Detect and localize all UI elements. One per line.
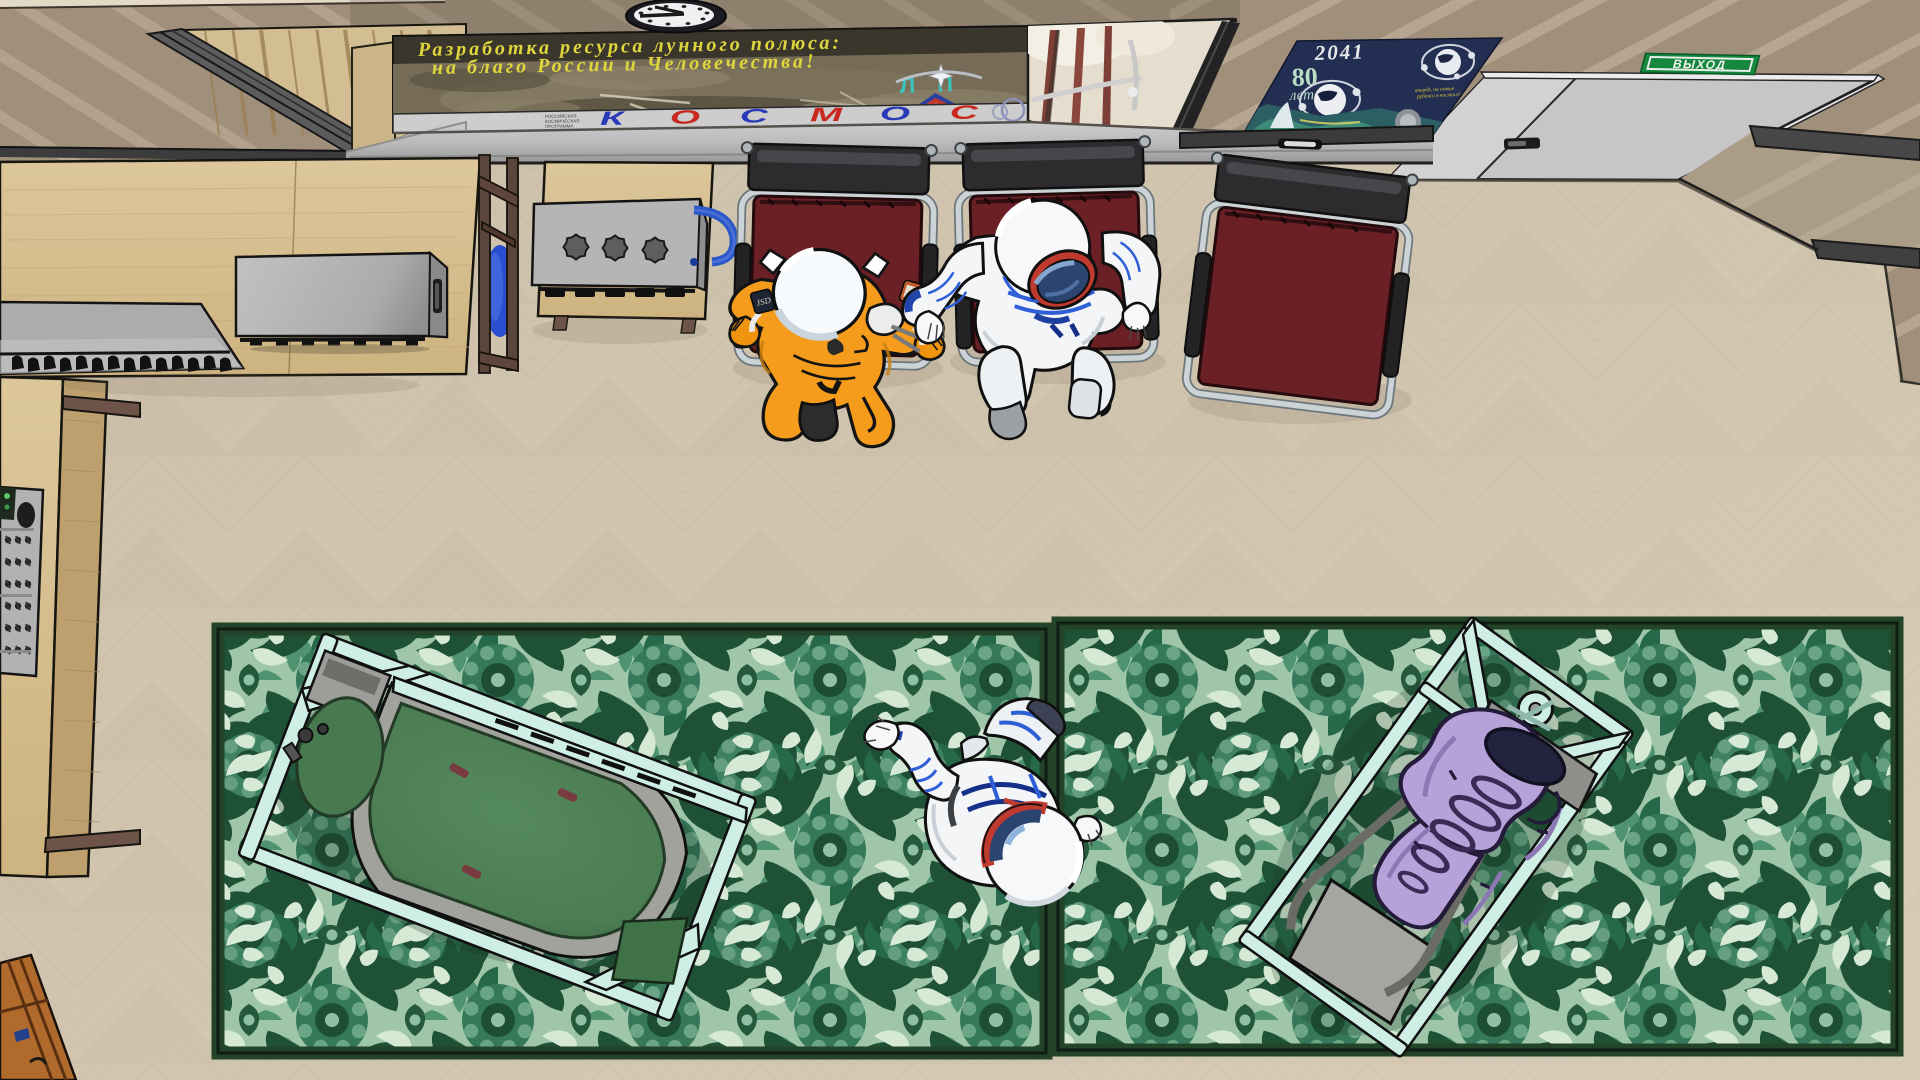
svg-text:К: К: [599, 107, 626, 129]
svg-text:С: С: [739, 105, 769, 127]
svg-text:О: О: [669, 106, 700, 128]
svg-text:2041: 2041: [1313, 39, 1365, 65]
svg-text:М: М: [809, 103, 844, 125]
svg-text:О: О: [879, 102, 910, 124]
svg-text:ПРОГРАММА: ПРОГРАММА: [545, 124, 573, 129]
svg-text:ВЫХОД: ВЫХОД: [1671, 57, 1728, 72]
svg-text:С: С: [949, 101, 979, 123]
